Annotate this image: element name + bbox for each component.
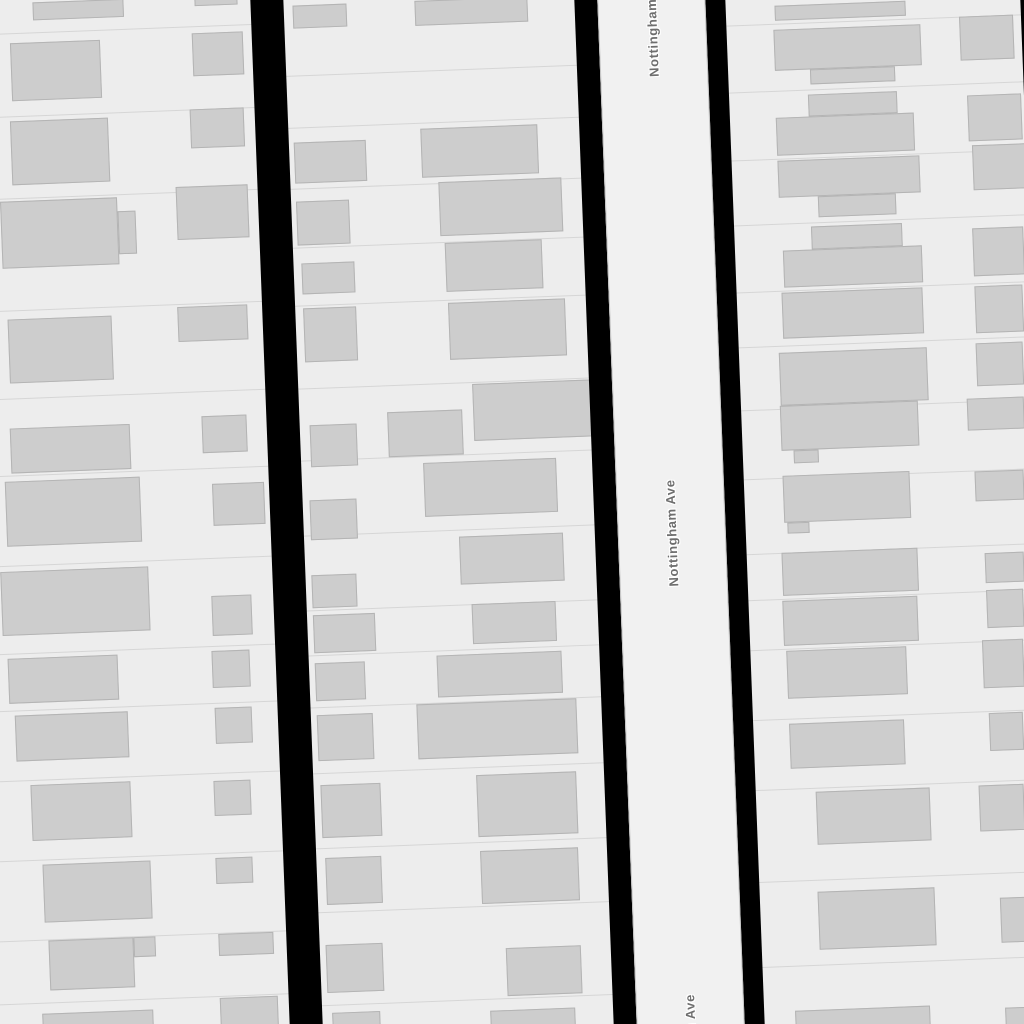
building-footprint [215,707,253,744]
building-footprint [292,4,347,29]
building-footprint [979,784,1024,832]
building-footprint [795,1006,932,1024]
building-footprint [816,787,932,844]
building-footprint [212,482,266,526]
building-footprint [959,15,1015,61]
building-footprint [445,239,544,292]
parcel-boundary-line [762,952,1024,968]
building-footprint [490,1008,576,1024]
building-footprint [0,197,119,268]
building-footprint [986,589,1024,628]
building-footprint [201,415,247,454]
building-footprint [215,857,253,884]
building-footprint [10,118,110,186]
building-footprint [190,107,245,148]
building-footprint [30,781,132,841]
building-footprint [786,646,908,699]
building-footprint [787,522,809,534]
building-footprint [1005,1007,1024,1024]
building-footprint [1000,897,1024,943]
road-label: Nottingham Ave [662,479,681,587]
building-footprint [808,91,898,116]
building-footprint [211,650,250,688]
building-footprint [332,1011,382,1024]
building-footprint [780,401,920,451]
building-footprint [177,304,248,342]
building-footprint [317,713,375,761]
building-footprint [416,698,578,759]
building-footprint [117,211,137,255]
building-footprint [773,24,921,71]
building-footprint [448,298,567,359]
building-footprint [15,711,130,761]
building-footprint [782,471,911,523]
building-footprint [194,0,237,6]
building-footprint [320,783,382,838]
building-footprint [315,661,366,701]
building-footprint [989,712,1024,751]
building-footprint [789,719,906,768]
building-footprint [0,566,150,636]
building-footprint [976,342,1024,387]
building-footprint [506,945,583,996]
building-footprint [777,155,920,197]
parcel-boundary-line [753,706,1024,722]
building-footprint [211,594,253,636]
building-footprint [310,423,359,467]
building-footprint [303,306,358,362]
building-footprint [774,1,905,21]
building-footprint [309,499,358,541]
road-label: Nottingham Ave [682,994,701,1024]
building-footprint [972,226,1024,276]
building-footprint [42,861,152,923]
building-footprint [781,287,924,338]
parcel-boundary-line [322,994,613,1006]
block-east [723,0,1024,1024]
building-footprint [42,1010,155,1024]
building-footprint [213,780,251,816]
building-footprint [218,932,274,956]
building-footprint [818,193,897,217]
building-footprint [192,31,245,76]
building-footprint [5,477,142,547]
block-west [0,0,292,1024]
building-footprint [48,937,135,990]
building-footprint [783,245,923,287]
building-footprint [176,184,250,240]
building-footprint [472,601,557,644]
parcel-boundary-line [759,867,1024,883]
building-footprint [476,771,578,837]
building-footprint [438,177,563,236]
building-footprint [985,552,1024,583]
building-footprint [794,449,819,463]
building-footprint [974,284,1024,333]
building-footprint [480,847,580,904]
building-footprint [10,424,132,474]
building-footprint [313,613,376,653]
building-footprint [459,533,565,585]
building-footprint [10,40,102,101]
building-footprint [294,140,368,184]
building-footprint [810,66,896,84]
parcel-boundary-line [286,65,577,77]
building-footprint [423,458,558,517]
building-footprint [781,548,919,596]
building-footprint [974,470,1024,502]
building-footprint [967,93,1023,141]
building-footprint [414,0,528,26]
building-footprint [296,200,351,246]
building-footprint [982,639,1024,689]
building-footprint [972,143,1024,190]
building-footprint [8,316,114,384]
building-footprint [32,0,124,20]
building-footprint [420,124,539,177]
building-footprint [811,223,903,249]
building-footprint [472,379,593,441]
building-footprint [8,655,120,704]
building-footprint [220,996,280,1024]
building-footprint [326,943,385,993]
building-footprint [301,261,355,294]
building-footprint [782,596,919,646]
building-footprint [133,936,156,957]
building-footprint [437,651,564,698]
road-label: Nottingham Ave [643,0,662,77]
block-center [281,0,616,1024]
building-footprint [779,347,929,406]
building-footprint [387,409,464,457]
building-footprint [817,887,936,949]
building-footprint [325,856,383,905]
building-footprint [776,113,915,156]
building-footprint [311,574,357,609]
building-footprint [967,397,1024,431]
parcel-boundary-line [0,389,265,403]
map-canvas[interactable]: Nottingham AveNottingham AveNottingham A… [0,0,1024,1024]
